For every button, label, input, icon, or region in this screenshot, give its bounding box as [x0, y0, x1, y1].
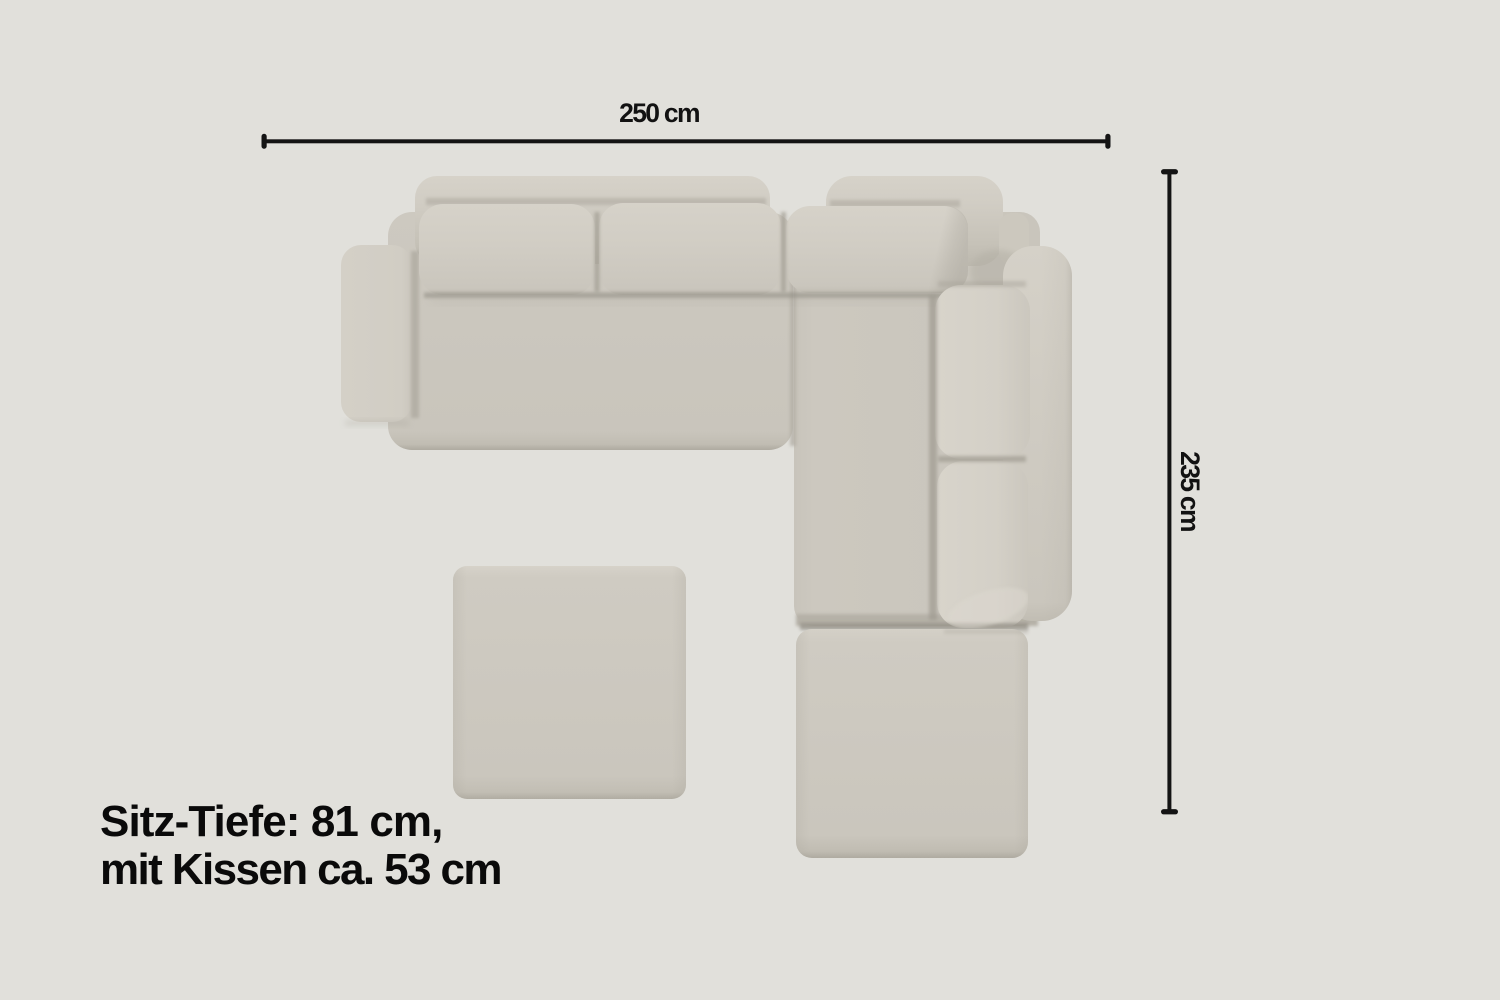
svg-text:mit Kissen ca. 53 cm: mit Kissen ca. 53 cm — [100, 845, 501, 894]
svg-text:Sitz-Tiefe: 81 cm,: Sitz-Tiefe: 81 cm, — [100, 797, 442, 846]
svg-text:250 cm: 250 cm — [619, 98, 699, 128]
svg-text:235 cm: 235 cm — [1175, 451, 1205, 531]
